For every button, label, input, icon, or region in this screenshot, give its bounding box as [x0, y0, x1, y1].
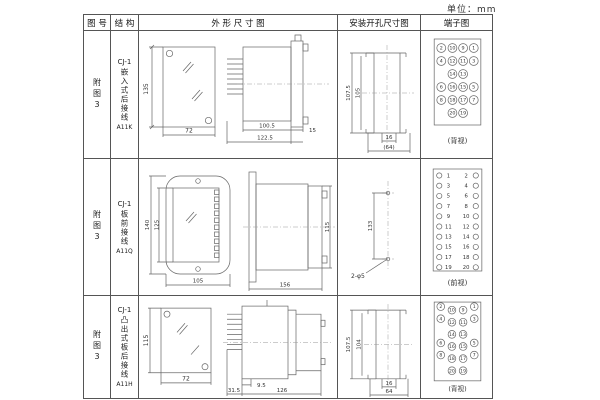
install-drawing-row3: 107.5 104 16 64: [338, 296, 420, 398]
dim-h-outer: (64): [383, 145, 394, 151]
svg-text:18: 18: [463, 255, 470, 261]
install-cell-row2: 133 2-φ5: [338, 159, 421, 296]
svg-text:4: 4: [439, 316, 442, 322]
terminal-view-caption: (背视): [448, 136, 468, 145]
svg-text:1: 1: [472, 46, 475, 52]
svg-text:14: 14: [449, 72, 455, 78]
terminal-pin-numbers: 21091 412113 1413 616155 818177 2019: [440, 46, 476, 117]
fig-label-text: 附图3: [92, 210, 103, 244]
dim-side-c: 126: [277, 388, 288, 394]
dim-v-outer: 107.5: [346, 85, 352, 101]
svg-text:6: 6: [464, 194, 467, 200]
terminal-drawing-row2: 12 34 56 78 910 1112 1314 1516 1718 1920…: [421, 159, 492, 295]
dim-side-b: 31.5: [228, 388, 241, 394]
dim-side-a: 9.5: [257, 383, 266, 389]
dim-front-h-outer: 140: [145, 219, 151, 230]
terminal-cell-row3: 21091 412113 1413 616155 818177 2019 (背视…: [421, 296, 492, 398]
dim-v-inner: 104: [357, 339, 363, 350]
terminal-block-outline: [434, 39, 481, 125]
svg-text:18: 18: [449, 98, 455, 104]
side-view: [249, 172, 332, 291]
dim-hole-spacing: 133: [368, 220, 374, 231]
svg-text:3: 3: [472, 59, 475, 65]
svg-text:14: 14: [449, 332, 455, 338]
model-label: CJ-1: [118, 200, 132, 208]
dim-front-width: 72: [185, 128, 193, 135]
fig-label-row2: 附图3: [84, 159, 111, 296]
svg-text:16: 16: [463, 245, 470, 251]
outline-drawing-row1: 135 72 100.5 15 122.5: [139, 31, 337, 158]
front-view: [149, 45, 215, 137]
outline-drawing-row3: 115 72 9.5 31.5 126: [139, 296, 337, 398]
dim-front-height: 135: [143, 83, 150, 95]
install-drawing-row2: 133 2-φ5: [338, 159, 420, 295]
dim-v-inner: 105: [356, 87, 362, 98]
svg-text:7: 7: [473, 353, 476, 359]
svg-text:1: 1: [473, 304, 476, 310]
structure-cell-row3: CJ-1 凸出式板后接线 A11H: [111, 296, 139, 398]
svg-text:9: 9: [447, 214, 450, 220]
svg-text:9: 9: [462, 308, 465, 314]
terminal-pin-numbers: 21091 412113 1413 616155 818177 2019: [439, 304, 475, 374]
header-structure: 结 构: [111, 15, 139, 31]
svg-text:3: 3: [473, 316, 476, 322]
svg-text:8: 8: [464, 204, 467, 210]
dim-side-length: 156: [280, 283, 291, 289]
terminal-drawing-row1: 21091 412113 1413 616155 818177 2019 (背视…: [421, 31, 492, 158]
svg-text:15: 15: [445, 245, 452, 251]
terminal-pins: [437, 303, 478, 375]
svg-text:2: 2: [440, 46, 443, 52]
terminal-view-caption: (前视): [448, 278, 468, 287]
dim-front-height: 115: [143, 334, 150, 346]
install-drawing-row1: 107.5 105 16 (64): [338, 31, 420, 158]
terminal-cell-row1: 21091 412113 1413 616155 818177 2019 (背视…: [421, 31, 492, 159]
structure-cell-row2: CJ-1 板前接线 A11Q: [111, 159, 139, 296]
svg-text:11: 11: [460, 320, 466, 326]
dim-side-b: 122.5: [257, 136, 273, 142]
svg-text:6: 6: [439, 341, 442, 347]
model-label: CJ-1: [118, 58, 132, 66]
side-view: [227, 300, 325, 396]
dim-h-outer: 64: [386, 389, 393, 395]
outline-cell-row1: 135 72 100.5 15 122.5: [139, 31, 338, 159]
centerlines: [364, 304, 412, 387]
svg-text:2: 2: [464, 173, 467, 179]
svg-text:13: 13: [460, 332, 466, 338]
svg-text:20: 20: [449, 111, 455, 117]
terminal-screws: [437, 173, 479, 270]
svg-text:2: 2: [439, 304, 442, 310]
terminal-drawing-row3: 21091 412113 1413 616155 818177 2019 (背视…: [421, 296, 492, 398]
svg-text:5: 5: [472, 85, 475, 91]
svg-text:5: 5: [447, 194, 450, 200]
svg-text:15: 15: [460, 85, 466, 91]
header-terminal: 端子图: [421, 15, 492, 31]
outline-drawing-row2: 140 125 105 156 115: [139, 159, 337, 295]
fig-label-row1: 附图3: [84, 31, 111, 159]
structure-desc: 板前接线: [119, 210, 130, 246]
structure-code: A11K: [117, 124, 133, 131]
svg-text:17: 17: [460, 98, 466, 104]
svg-text:1: 1: [447, 173, 450, 179]
svg-text:7: 7: [472, 98, 475, 104]
fig-label-text: 附图3: [92, 330, 103, 364]
svg-text:7: 7: [447, 204, 450, 210]
front-view: [149, 176, 230, 287]
spec-table: 图 号 结 构 外 形 尺 寸 图 安装开孔尺寸图 端子图 附图3 CJ-1 嵌…: [83, 14, 493, 399]
svg-text:10: 10: [449, 46, 455, 52]
header-install: 安装开孔尺寸图: [338, 15, 421, 31]
svg-text:19: 19: [460, 368, 466, 374]
svg-text:17: 17: [445, 255, 452, 261]
svg-text:8: 8: [440, 98, 443, 104]
svg-text:16: 16: [449, 344, 455, 350]
svg-text:18: 18: [449, 356, 455, 362]
svg-text:12: 12: [449, 320, 455, 326]
fig-label-row3: 附图3: [84, 296, 111, 398]
svg-text:4: 4: [464, 184, 468, 190]
dim-front-width: 105: [193, 279, 204, 285]
svg-text:19: 19: [460, 111, 466, 117]
install-cell-row1: 107.5 105 16 (64): [338, 31, 421, 159]
svg-text:17: 17: [460, 356, 466, 362]
header-fig-no: 图 号: [84, 15, 111, 31]
manual-page: 单位：mm 图 号 结 构 外 形 尺 寸 图 安装开孔尺寸图 端子图 附图3 …: [0, 0, 600, 400]
svg-text:3: 3: [447, 184, 450, 190]
svg-text:11: 11: [445, 224, 452, 230]
dim-side-a: 100.5: [259, 124, 275, 130]
dim-h-inner: 16: [386, 135, 393, 141]
hole-diameter-label: 2-φ5: [351, 273, 365, 280]
terminal-view-caption: (背视): [448, 384, 466, 393]
svg-text:12: 12: [449, 59, 455, 65]
svg-text:13: 13: [460, 72, 466, 78]
svg-text:20: 20: [463, 265, 470, 271]
outline-cell-row3: 115 72 9.5 31.5 126: [139, 296, 338, 398]
svg-text:11: 11: [460, 59, 466, 65]
install-cell-row3: 107.5 104 16 64: [338, 296, 421, 398]
structure-cell-row1: CJ-1 嵌入式后接线 A11K: [111, 31, 139, 159]
dim-side-c: 15: [309, 128, 316, 134]
dim-front-width: 72: [182, 375, 190, 382]
structure-code: A11H: [116, 381, 132, 388]
dim-side-height: 115: [325, 221, 331, 232]
terminal-pin-numbers: 12 34 56 78 910 1112 1314 1516 1718 1920: [445, 173, 470, 271]
model-label: CJ-1: [118, 306, 132, 314]
svg-text:16: 16: [449, 85, 455, 91]
terminal-cell-row2: 12 34 56 78 910 1112 1314 1516 1718 1920…: [421, 159, 492, 296]
svg-text:12: 12: [463, 224, 470, 230]
svg-text:8: 8: [439, 353, 442, 359]
outline-cell-row2: 140 125 105 156 115: [139, 159, 338, 296]
terminal-block-outline: [433, 169, 482, 271]
svg-text:20: 20: [449, 368, 455, 374]
svg-text:10: 10: [463, 214, 470, 220]
svg-text:5: 5: [473, 341, 476, 347]
svg-text:14: 14: [463, 235, 470, 241]
cutout-shape: [350, 310, 408, 397]
svg-text:15: 15: [460, 344, 466, 350]
structure-desc: 嵌入式后接线: [119, 68, 130, 122]
cutout-shape: [350, 53, 410, 153]
fig-label-text: 附图3: [92, 78, 103, 112]
svg-text:9: 9: [462, 46, 465, 52]
centerlines: [362, 45, 414, 143]
structure-desc: 凸出式板后接线: [119, 316, 130, 379]
header-outline: 外 形 尺 寸 图: [139, 15, 338, 31]
structure-code: A11Q: [116, 248, 132, 255]
dim-h-inner: 16: [386, 381, 393, 387]
dim-front-h-inner: 125: [155, 219, 161, 230]
terminal-pins: [437, 44, 478, 118]
svg-text:19: 19: [445, 265, 452, 271]
svg-text:4: 4: [440, 59, 443, 65]
dim-v-outer: 107.5: [346, 336, 352, 352]
svg-text:10: 10: [449, 308, 455, 314]
svg-text:6: 6: [440, 85, 443, 91]
svg-text:13: 13: [445, 235, 452, 241]
front-view: [148, 308, 211, 385]
